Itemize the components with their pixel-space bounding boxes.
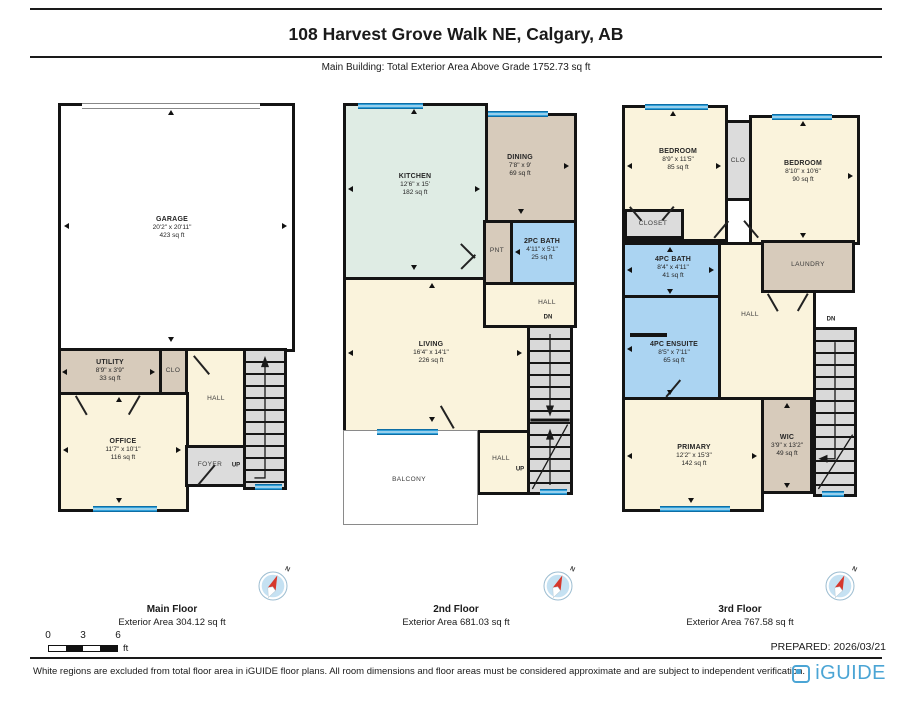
dimension-arrow-icon (475, 186, 480, 192)
dimension-arrow-icon (667, 289, 673, 294)
room-label-hall-upper: HALL (538, 299, 556, 307)
compass-main-floor-icon: N (258, 571, 288, 601)
room-hall-upper (483, 282, 577, 328)
dimension-arrow-icon (64, 223, 69, 229)
dimension-arrow-icon (627, 453, 632, 459)
room-name: 4PC ENSUITE (650, 341, 698, 349)
room-area: 423 sq ft (153, 232, 192, 240)
dimension-arrow-icon (518, 209, 524, 214)
room-name: 4PC BATH (655, 256, 691, 264)
room-label-wic: WIC 3'9" x 13'2" 49 sq ft (771, 434, 803, 458)
window-icon (93, 506, 157, 512)
room-label-living: LIVING 16'4" x 14'1" 226 sq ft (413, 341, 449, 365)
room-dims: 7'8" x 9' (507, 162, 533, 170)
room-label-bedroom-right: BEDROOM 8'10" x 10'6" 90 sq ft (784, 160, 822, 184)
room-dims: 20'2" x 20'11" (153, 224, 192, 232)
room-area: 142 sq ft (676, 460, 712, 468)
room-label-utility: UTILITY 8'9" x 3'9" 33 sq ft (96, 359, 124, 383)
floor-area: Exterior Area 304.12 sq ft (118, 617, 225, 628)
garage-door-icon (82, 103, 260, 109)
room-label-bedroom-left: BEDROOM 8'9" x 11'5" 85 sq ft (659, 148, 697, 172)
title-underline (30, 56, 882, 58)
room-label-primary: PRIMARY 12'2" x 15'3" 142 sq ft (676, 444, 712, 468)
room-name: PRIMARY (676, 444, 712, 452)
dimension-arrow-icon (627, 267, 632, 273)
room-dims: 8'9" x 11'5" (659, 156, 697, 164)
footer-separator-line (30, 657, 882, 659)
dimension-arrow-icon (168, 337, 174, 342)
room-name: DN (544, 315, 553, 322)
prepared-date: PREPARED: 2026/03/21 (771, 641, 886, 653)
room-name: HALL (538, 299, 556, 307)
room-name: BEDROOM (784, 160, 822, 168)
room-name: GARAGE (153, 216, 192, 224)
room-dims: 12'2" x 15'3" (676, 452, 712, 460)
dimension-arrow-icon (688, 498, 694, 503)
iguide-logo: iGUIDE (792, 662, 886, 685)
room-name: CLO (731, 157, 746, 165)
dimension-arrow-icon (116, 397, 122, 402)
compass-north-label: N (851, 565, 858, 573)
room-label-kitchen: KITCHEN 12'6" x 15' 182 sq ft (399, 173, 432, 197)
room-label-dining: DINING 7'8" x 9' 69 sq ft (507, 154, 533, 178)
room-name: LAUNDRY (791, 261, 825, 269)
compass-north-label: N (569, 565, 576, 573)
dimension-arrow-icon (627, 163, 632, 169)
compass-3rd-floor-icon: N (825, 571, 855, 601)
dimension-arrow-icon (564, 163, 569, 169)
room-name: DN (827, 317, 836, 324)
dimension-arrow-icon (411, 265, 417, 270)
room-label-foyer: FOYER (198, 461, 222, 469)
room-area: 85 sq ft (659, 164, 697, 172)
stairs-main-floor (243, 348, 287, 490)
dimension-arrow-icon (63, 447, 68, 453)
room-name: BEDROOM (659, 148, 697, 156)
stairs-up-label: UP (232, 463, 240, 470)
stairs-down-arrow-icon (816, 330, 854, 494)
room-dims: 3'9" x 13'2" (771, 442, 803, 450)
compass-rose-icon (825, 571, 855, 601)
room-area: 90 sq ft (784, 176, 822, 184)
room-label-2pc-bath: 2PC BATH 4'11" x 5'1" 25 sq ft (524, 238, 560, 262)
scale-tick-0: 0 (45, 630, 51, 641)
second-floor-plan: KITCHEN 12'6" x 15' 182 sq ft DINING 7'8… (343, 103, 577, 527)
room-label-hall: HALL (207, 395, 225, 403)
iguide-logo-text: iGUIDE (815, 662, 886, 685)
room-name: UTILITY (96, 359, 124, 367)
dimension-arrow-icon (800, 233, 806, 238)
room-name: 2PC BATH (524, 238, 560, 246)
window-icon (488, 111, 548, 117)
dimension-arrow-icon (752, 453, 757, 459)
page-subtitle: Main Building: Total Exterior Area Above… (0, 62, 912, 73)
dimension-arrow-icon (627, 346, 632, 352)
room-area: 65 sq ft (650, 357, 698, 365)
dimension-arrow-icon (848, 173, 853, 179)
room-label-hall: HALL (741, 311, 759, 319)
dimension-arrow-icon (716, 163, 721, 169)
window-icon (645, 104, 708, 110)
scale-segment (49, 646, 66, 651)
room-name: BALCONY (392, 476, 426, 484)
scale-segment (83, 646, 100, 651)
room-dims: 8'9" x 3'9" (96, 367, 124, 375)
room-dims: 8'4" x 4'11" (655, 264, 691, 272)
scale-segment (66, 646, 83, 651)
room-area: 226 sq ft (413, 357, 449, 365)
room-label-pantry: PNT (490, 247, 504, 255)
dimension-arrow-icon (168, 110, 174, 115)
page-title: 108 Harvest Grove Walk NE, Calgary, AB (0, 24, 912, 45)
room-name: UP (516, 467, 524, 474)
floor-name: 2nd Floor (402, 604, 509, 615)
floor-name: Main Floor (118, 604, 225, 615)
room-name: WIC (771, 434, 803, 442)
stairs-third-floor (813, 327, 857, 497)
compass-rose-icon (543, 571, 573, 601)
room-label-4pc-bath: 4PC BATH 8'4" x 4'11" 41 sq ft (655, 256, 691, 280)
compass-rose-icon (258, 571, 288, 601)
window-icon (255, 484, 282, 490)
room-name: CLO (166, 367, 181, 375)
dimension-arrow-icon (670, 111, 676, 116)
room-name: FOYER (198, 461, 222, 469)
dimension-arrow-icon (429, 417, 435, 422)
room-label-office: OFFICE 11'7" x 10'1" 116 sq ft (105, 438, 140, 462)
scale-tick-6: 6 (115, 630, 121, 641)
room-label-clo: CLO (166, 367, 181, 375)
dimension-arrow-icon (784, 483, 790, 488)
window-icon (540, 489, 567, 495)
room-name: DINING (507, 154, 533, 162)
main-floor-caption: Main Floor Exterior Area 304.12 sq ft (118, 604, 225, 628)
dimension-arrow-icon (150, 369, 155, 375)
compass-2nd-floor-icon: N (543, 571, 573, 601)
window-icon (772, 114, 832, 120)
top-border-line (30, 8, 882, 10)
room-name: CLOSET (639, 220, 667, 228)
room-dims: 12'6" x 15' (399, 181, 432, 189)
main-floor-plan: GARAGE 20'2" x 20'11" 423 sq ft UTILITY … (58, 103, 295, 515)
room-area: 182 sq ft (399, 189, 432, 197)
room-name: KITCHEN (399, 173, 432, 181)
dimension-arrow-icon (62, 369, 67, 375)
room-area: 49 sq ft (771, 450, 803, 458)
scale-segment (100, 646, 117, 651)
dimension-arrow-icon (667, 390, 673, 395)
room-label-4pc-ensuite: 4PC ENSUITE 8'5" x 7'11" 65 sq ft (650, 341, 698, 365)
dimension-arrow-icon (784, 403, 790, 408)
dimension-arrow-icon (667, 247, 673, 252)
dimension-arrow-icon (709, 267, 714, 273)
window-icon (377, 429, 438, 435)
dimension-arrow-icon (800, 121, 806, 126)
compass-north-label: N (284, 565, 291, 573)
stairs-down-label: DN (827, 317, 836, 324)
floor-area: Exterior Area 681.03 sq ft (402, 617, 509, 628)
room-area: 116 sq ft (105, 454, 140, 462)
window-icon (660, 506, 730, 512)
floor-area: Exterior Area 767.58 sq ft (686, 617, 793, 628)
dimension-arrow-icon (429, 283, 435, 288)
room-label-closet: CLOSET (639, 220, 667, 228)
stairs-up-label: UP (516, 467, 524, 474)
disclaimer-text: White regions are excluded from total fl… (33, 666, 805, 677)
dimension-arrow-icon (348, 186, 353, 192)
dimension-arrow-icon (348, 350, 353, 356)
room-label-garage: GARAGE 20'2" x 20'11" 423 sq ft (153, 216, 192, 240)
room-name: HALL (207, 395, 225, 403)
scale-unit-label: ft (123, 643, 128, 654)
dimension-arrow-icon (515, 249, 520, 255)
room-area: 69 sq ft (507, 170, 533, 178)
room-name: UP (232, 463, 240, 470)
second-floor-caption: 2nd Floor Exterior Area 681.03 sq ft (402, 604, 509, 628)
third-floor-plan: BEDROOM 8'9" x 11'5" 85 sq ft CLO BEDROO… (622, 103, 860, 518)
scale-bar (48, 645, 118, 652)
room-area: 25 sq ft (524, 254, 560, 262)
stairs-down-label: DN (544, 315, 553, 322)
room-label-balcony: BALCONY (392, 476, 426, 484)
ensuite-partition-wall (630, 333, 667, 337)
room-dims: 4'11" x 5'1" (524, 246, 560, 254)
iguide-logo-icon (792, 665, 810, 683)
room-name: PNT (490, 247, 504, 255)
dimension-arrow-icon (517, 350, 522, 356)
stairs-down-up-arrows-icon (530, 328, 570, 492)
room-name: LIVING (413, 341, 449, 349)
room-dims: 11'7" x 10'1" (105, 446, 140, 454)
dimension-arrow-icon (411, 109, 417, 114)
room-name: HALL (741, 311, 759, 319)
room-dims: 16'4" x 14'1" (413, 349, 449, 357)
window-icon (822, 491, 844, 497)
room-name: HALL (492, 455, 510, 463)
stairs-up-arrow-icon (246, 351, 284, 487)
room-area: 41 sq ft (655, 272, 691, 280)
dimension-arrow-icon (176, 447, 181, 453)
room-label-clo: CLO (731, 157, 746, 165)
dimension-arrow-icon (116, 498, 122, 503)
third-floor-caption: 3rd Floor Exterior Area 767.58 sq ft (686, 604, 793, 628)
stairs-second-floor (527, 325, 573, 495)
room-label-laundry: LAUNDRY (791, 261, 825, 269)
dimension-arrow-icon (282, 223, 287, 229)
floor-name: 3rd Floor (686, 604, 793, 615)
room-area: 33 sq ft (96, 375, 124, 383)
room-dims: 8'5" x 7'11" (650, 349, 698, 357)
room-dims: 8'10" x 10'6" (784, 168, 822, 176)
scale-tick-3: 3 (80, 630, 86, 641)
room-name: OFFICE (105, 438, 140, 446)
room-label-hall-lower: HALL (492, 455, 510, 463)
